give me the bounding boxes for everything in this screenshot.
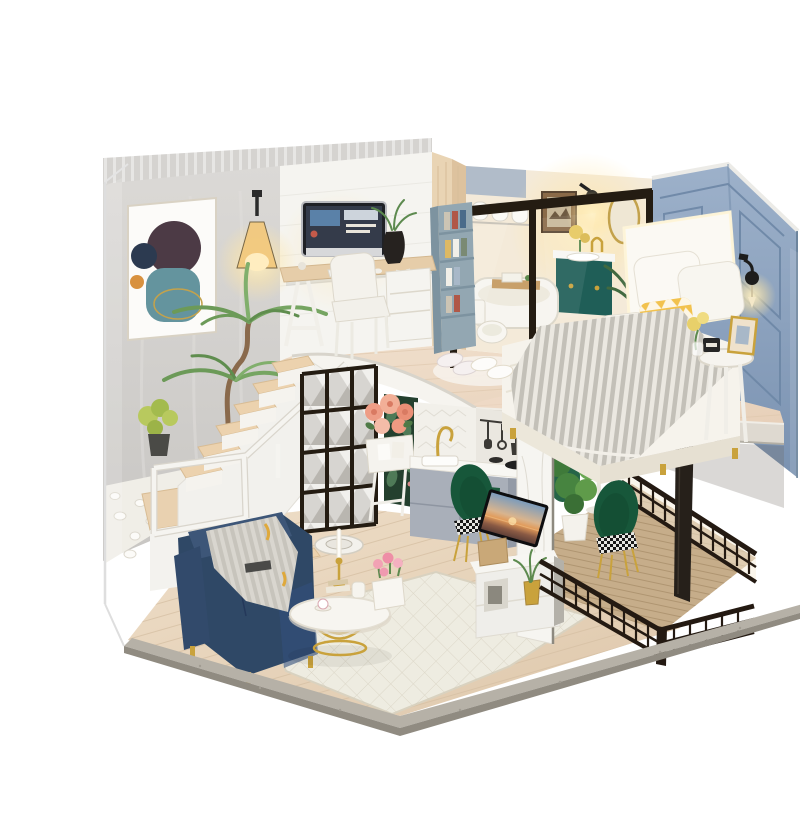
art-teal-blob — [146, 268, 200, 322]
gold-picture-frame — [728, 317, 757, 354]
art-maroon-circle — [147, 221, 201, 275]
gold-foot — [732, 448, 738, 459]
lattice-screen — [302, 366, 376, 532]
gold-foot — [510, 428, 516, 439]
gold-plant-pot — [524, 580, 540, 605]
tulip-vase — [372, 553, 405, 611]
art-orange-dot — [130, 275, 144, 289]
dollhouse-product-photo — [40, 16, 800, 816]
dollhouse — [103, 138, 800, 736]
white-jar — [352, 582, 365, 598]
desk-cup — [298, 262, 306, 270]
flower-planter-box — [366, 435, 415, 473]
speaker-box — [478, 538, 508, 566]
backsplash-herringbone — [414, 402, 476, 464]
cooking-pot — [489, 457, 503, 463]
drawer-unit — [386, 268, 432, 342]
acrylic-reflection-left — [105, 178, 122, 596]
scene-canvas — [40, 16, 800, 816]
bookshelf — [430, 202, 476, 354]
tub-book — [502, 273, 522, 282]
art-navy-circle — [131, 243, 157, 269]
bathroom-upper-corner — [466, 166, 526, 198]
plant-pot — [562, 514, 588, 541]
kitchen-sink — [422, 456, 458, 466]
acrylic-reflection-right — [790, 248, 800, 576]
gold-foot — [660, 464, 666, 475]
glass-vase — [692, 342, 703, 356]
wall-art — [128, 198, 216, 340]
